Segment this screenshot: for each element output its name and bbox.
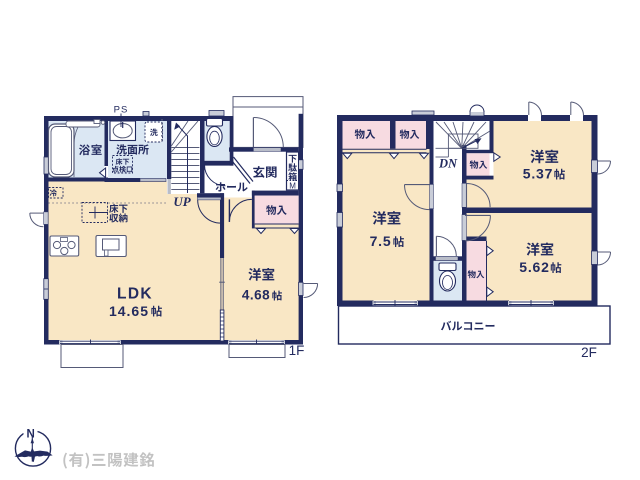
svg-text:7.5: 7.5 — [370, 233, 392, 249]
svg-text:14.65: 14.65 — [109, 303, 149, 319]
svg-text:PS: PS — [114, 105, 129, 116]
svg-text:1F: 1F — [289, 343, 305, 358]
svg-text:LDK: LDK — [117, 286, 153, 303]
svg-text:DN: DN — [438, 157, 458, 171]
svg-text:5.37: 5.37 — [523, 166, 553, 182]
svg-text:UP: UP — [173, 194, 191, 209]
svg-text:4.68: 4.68 — [242, 288, 270, 303]
svg-text:5.62: 5.62 — [519, 259, 549, 275]
svg-text:N: N — [26, 429, 34, 441]
svg-text:M: M — [289, 181, 296, 190]
svg-text:2F: 2F — [581, 345, 597, 360]
